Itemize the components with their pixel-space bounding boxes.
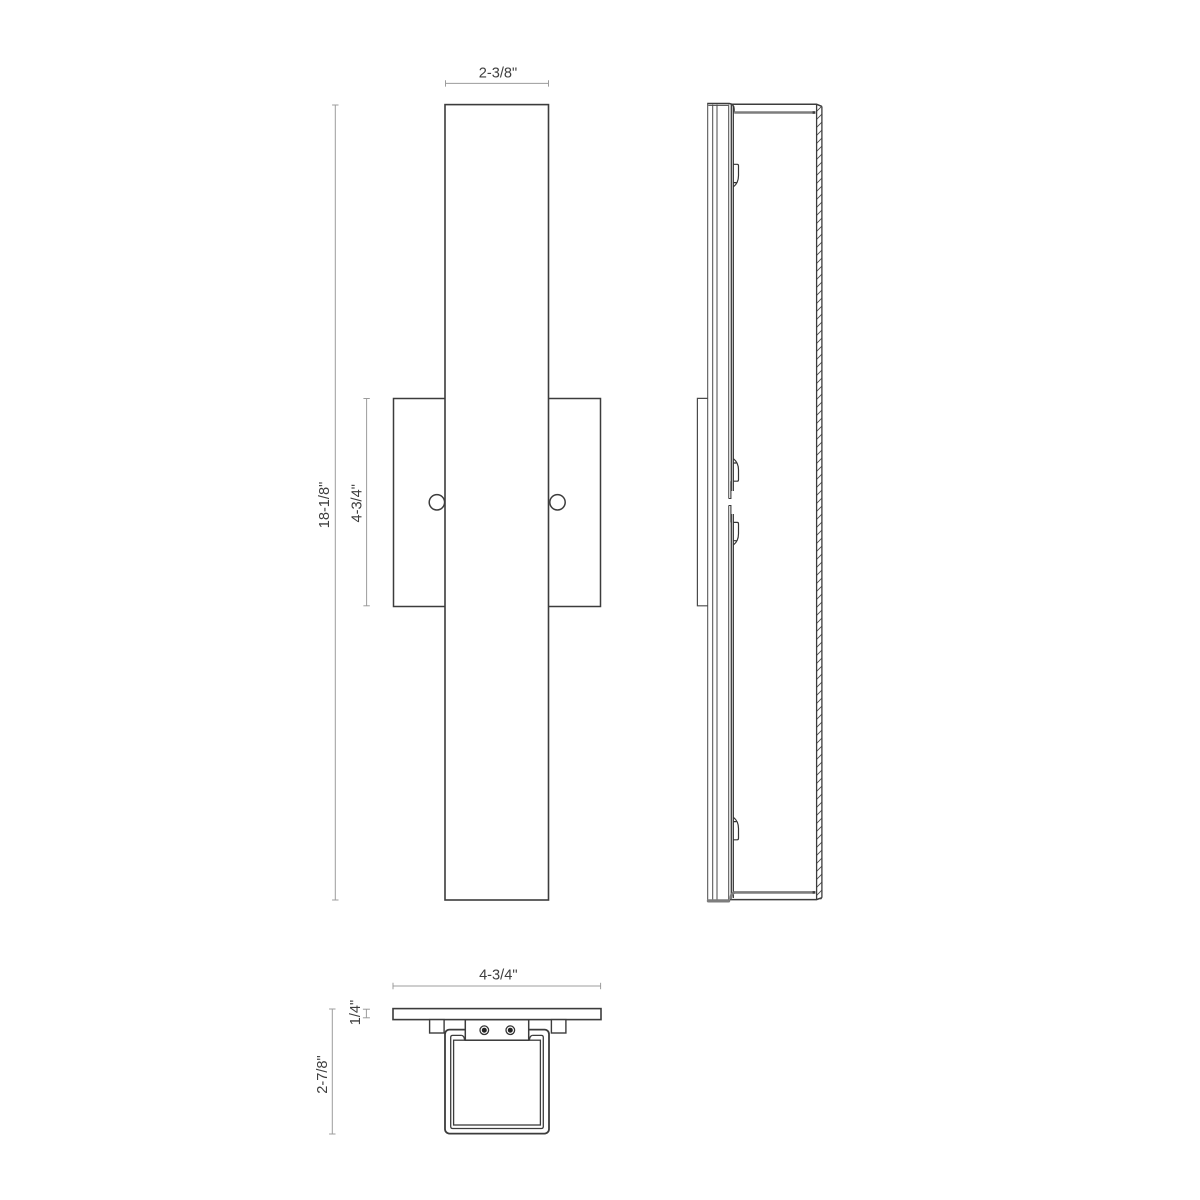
svg-text:2-3/8": 2-3/8" xyxy=(479,66,517,82)
svg-text:4-3/4": 4-3/4" xyxy=(479,968,517,984)
svg-text:18-1/8": 18-1/8" xyxy=(317,482,333,529)
svg-text:4-3/4": 4-3/4" xyxy=(350,484,366,522)
svg-text:2-7/8": 2-7/8" xyxy=(315,1055,331,1093)
svg-text:1/4": 1/4" xyxy=(348,1000,364,1025)
